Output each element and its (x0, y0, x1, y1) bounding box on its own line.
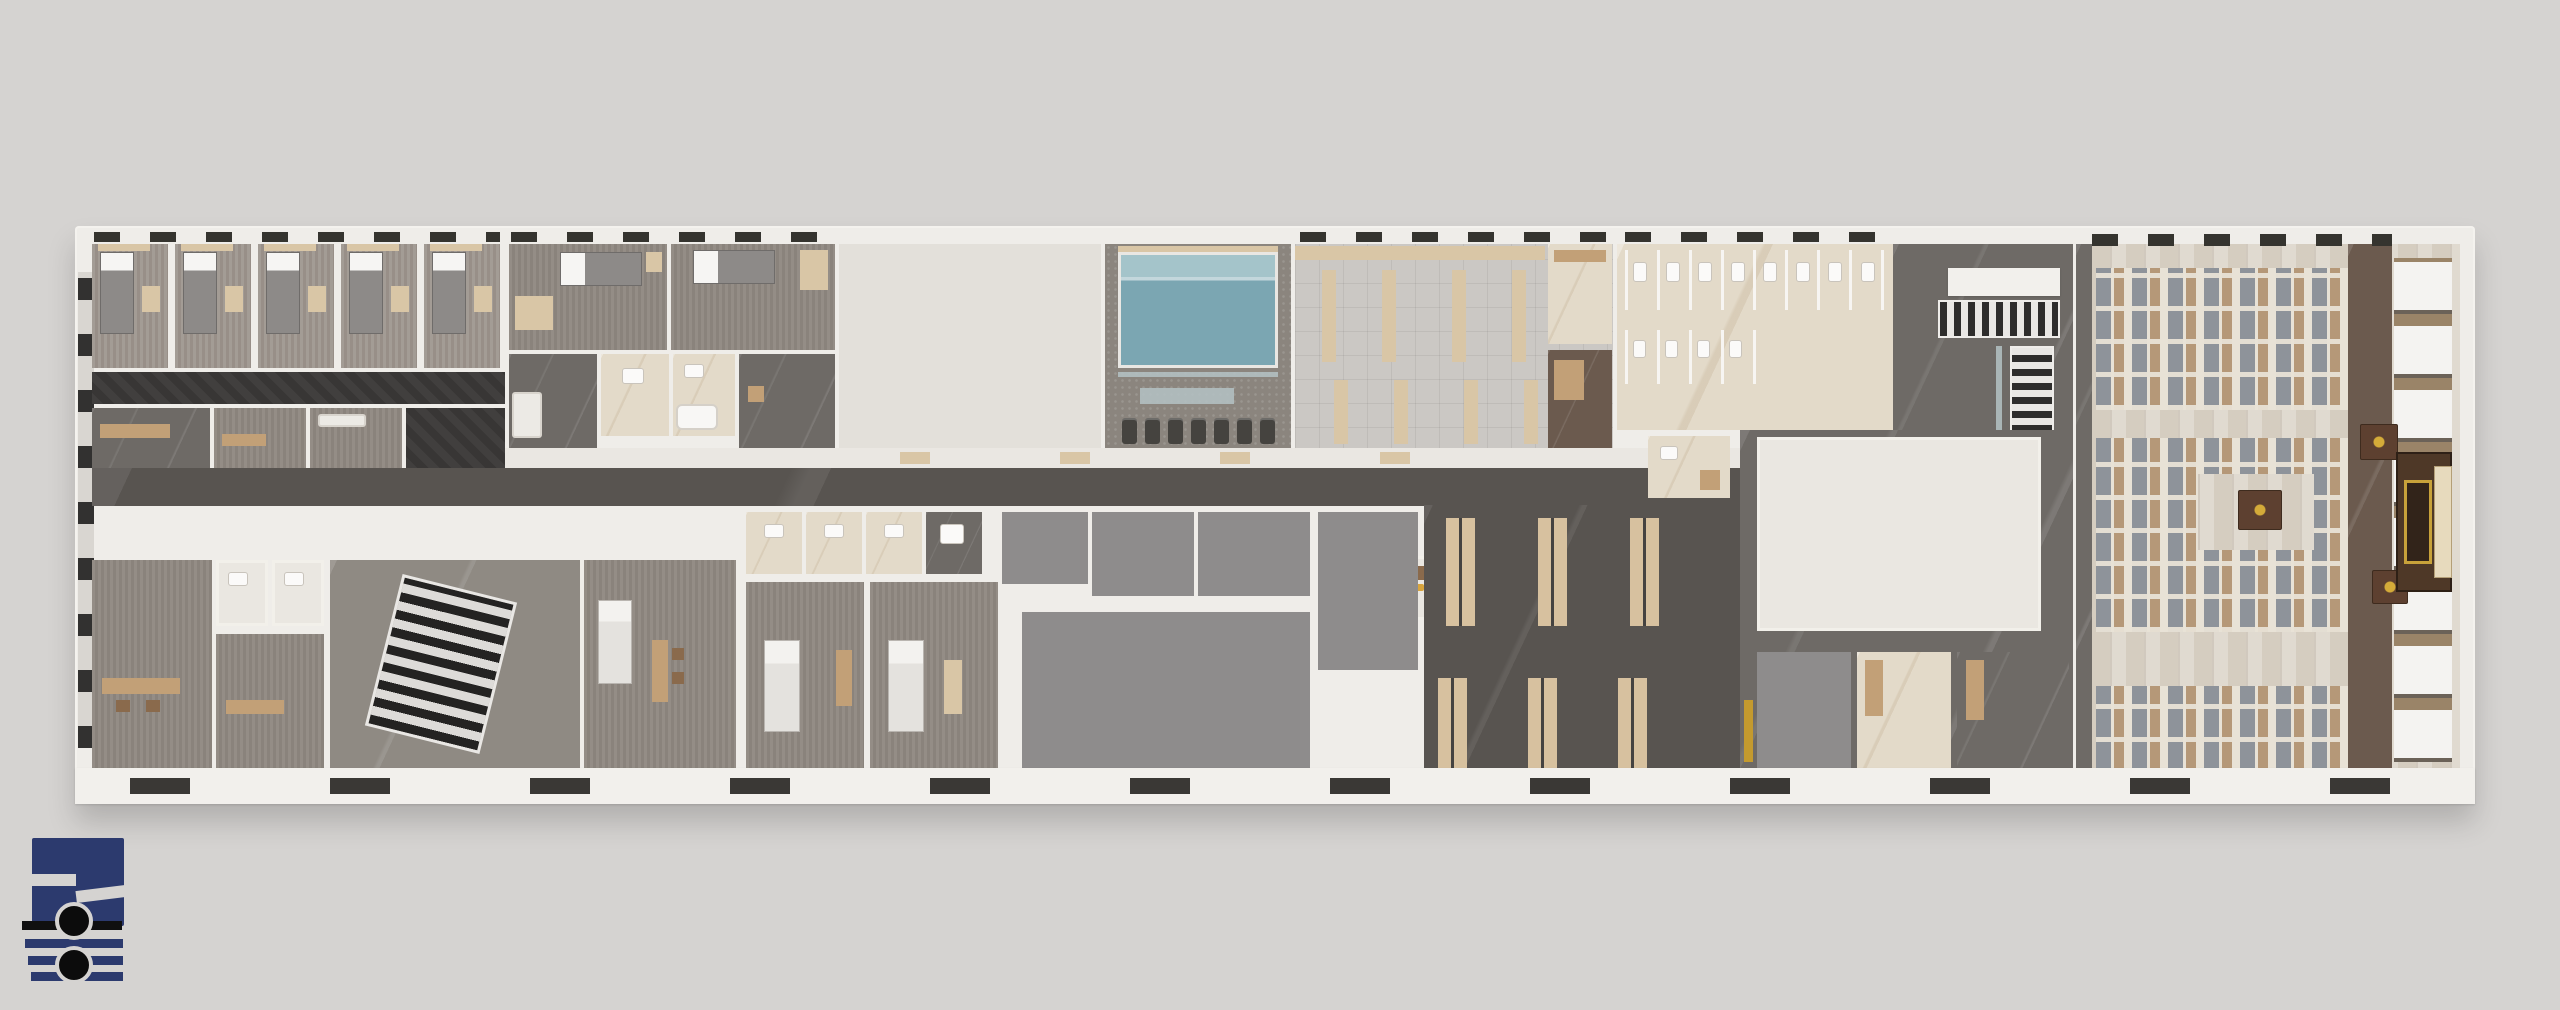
empty-room-floor (1002, 512, 1088, 584)
wc-sink (228, 572, 248, 586)
wc-cell-floor (216, 560, 268, 626)
office-lower-desk (102, 678, 180, 694)
bedroom-6-bed (560, 252, 642, 286)
bedroom-3-headboard (264, 244, 316, 251)
bathroom-a-floor (601, 354, 669, 436)
corridor-door (1220, 452, 1250, 464)
corridor-wall-band (505, 448, 1740, 468)
study-room-desk (222, 434, 266, 446)
dining-table-group (1446, 518, 1490, 626)
toilet (1731, 262, 1745, 282)
toilet-annex-sink (1660, 446, 1678, 460)
logo-circle-top (55, 902, 93, 940)
corridor-left (92, 372, 505, 404)
bench (1334, 380, 1348, 444)
logo-slot-left (26, 874, 76, 886)
pool-lounger (1237, 418, 1252, 444)
pool-lounger (1214, 418, 1229, 444)
bedroom-5-headboard (430, 244, 482, 251)
corridor-junction (406, 408, 505, 468)
toilet-block-skylights (1625, 232, 1887, 242)
office-chair (146, 700, 160, 712)
bench (1464, 380, 1478, 444)
lecture-hall-right-aisle (2348, 244, 2392, 775)
guest-chair (672, 648, 684, 660)
gold-coat-rack (1744, 700, 1753, 762)
corridor-door (1060, 452, 1090, 464)
bedroom-1-headboard (98, 244, 150, 251)
toilet (1828, 262, 1842, 282)
bedroom-1-bed (100, 252, 134, 334)
toilet (1633, 262, 1647, 282)
toilet (1763, 262, 1777, 282)
dining-table-group (1528, 678, 1572, 774)
bench (1452, 270, 1466, 362)
toilet (1861, 262, 1875, 282)
corridor-door (1380, 452, 1410, 464)
office-lower2-desk (226, 700, 284, 714)
lobby-room-c-cabinet (1966, 660, 1984, 720)
locker-strip (1295, 246, 1545, 260)
changing-room-skylights (1300, 232, 1606, 242)
lobby-room-b-cabinet (1865, 660, 1883, 716)
bathroom-a-sink (622, 368, 644, 384)
dining-table-group (1618, 678, 1662, 774)
bedroom-2-shelf (225, 286, 243, 312)
wc-sink (284, 572, 304, 586)
swimming-pool (1118, 252, 1278, 368)
stair-landing (1948, 268, 2060, 296)
desk-rows-bank (2096, 686, 2348, 775)
bench (1382, 270, 1396, 362)
toilet (1729, 340, 1742, 358)
toilet-stall-partitions-lower (1625, 330, 1765, 384)
toilet (1697, 340, 1710, 358)
bedroom-4-bed (349, 252, 383, 334)
dorm-bed (888, 640, 924, 732)
bedroom-skylights-mid (511, 232, 831, 242)
center-podium (2238, 490, 2282, 530)
dining-table-group (1438, 678, 1482, 774)
bench (1394, 380, 1408, 444)
side-podium (2360, 424, 2398, 460)
stage-gold-rug (2404, 480, 2432, 564)
dorm-bench (944, 660, 962, 714)
pool-glass-table (1140, 388, 1234, 404)
empty-room-floor (1092, 512, 1194, 596)
guest-chair (672, 672, 684, 684)
bedroom-4-shelf (391, 286, 409, 312)
dining-table-group (1630, 518, 1674, 626)
lecture-hall-left-border (2076, 244, 2092, 775)
bathroom-b-sink (684, 364, 704, 378)
pool-lounger (1122, 418, 1137, 444)
hall-nook-sofa (512, 392, 542, 438)
empty-room-floor (1198, 512, 1310, 596)
pool-lounger (1260, 418, 1275, 444)
staircase-upper (1938, 300, 2060, 338)
lounge-sofa (318, 414, 366, 427)
guest-bed (598, 600, 632, 684)
office-meeting-table (100, 424, 170, 438)
pool-lounger (1145, 418, 1160, 444)
bedroom-5-bed (432, 252, 466, 334)
bedroom-7-bed (693, 250, 775, 284)
toilet-stall-partitions (1625, 250, 1885, 310)
stage-lectern (2434, 466, 2452, 578)
office-room-floor (92, 408, 210, 468)
sauna-1-bench (1554, 250, 1606, 262)
lobby-white-platform (1757, 437, 2041, 631)
toilet (1796, 262, 1810, 282)
washroom-sink (764, 524, 784, 538)
washroom-cell-floor (746, 512, 802, 574)
toilet (1633, 340, 1646, 358)
empty-hall-floor (1022, 612, 1310, 770)
bedroom-1-shelf (142, 286, 160, 312)
sauna-2-bench (1554, 360, 1584, 400)
pool-lounger (1168, 418, 1183, 444)
empty-room-floor (1318, 512, 1418, 670)
bench (1512, 270, 1526, 362)
roof-slab (839, 244, 1101, 468)
toilet (1698, 262, 1712, 282)
bedroom-skylights-left (94, 232, 500, 242)
lecture-hall-skylights (2092, 234, 2392, 246)
washroom-sink (824, 524, 844, 538)
bedroom-3-bed (266, 252, 300, 334)
bedroom-6-nightstand (646, 252, 662, 272)
bedroom-2-headboard (181, 244, 233, 251)
hall-nook2-chair (748, 386, 764, 402)
washroom-sink (884, 524, 904, 538)
office-chair (116, 700, 130, 712)
lobby-room-a-floor (1757, 652, 1851, 768)
bathroom-b-tub (676, 404, 718, 430)
pool-glass-fence (1118, 372, 1278, 377)
front-facade-windows (130, 778, 2420, 794)
bench (1524, 380, 1538, 444)
pool-lounger (1191, 418, 1206, 444)
guest-table (652, 640, 668, 702)
toilet (1665, 340, 1678, 358)
bench (1322, 270, 1336, 362)
toilet (1666, 262, 1680, 282)
desk-rows-bank (2096, 268, 2348, 410)
bedroom-6-desk (515, 296, 553, 330)
office-lower-floor (92, 560, 212, 772)
corridor-door (900, 452, 930, 464)
dorm-bed (764, 640, 800, 732)
dining-table-group (1538, 518, 1582, 626)
bedroom-7-wardrobe (800, 250, 828, 290)
bedroom-5-shelf (474, 286, 492, 312)
washroom-cell-floor (866, 512, 922, 574)
wc-cell-floor (272, 560, 324, 626)
washroom-cell-floor (806, 512, 862, 574)
floor-plan-render (0, 0, 2560, 1010)
shower-tray (940, 524, 964, 544)
bedroom-4-headboard (347, 244, 399, 251)
dorm-desk (836, 650, 852, 706)
toilet-annex-cabinet (1700, 470, 1720, 490)
logo-circle-bottom (55, 946, 93, 984)
bedroom-2-bed (183, 252, 217, 334)
bedroom-3-shelf (308, 286, 326, 312)
